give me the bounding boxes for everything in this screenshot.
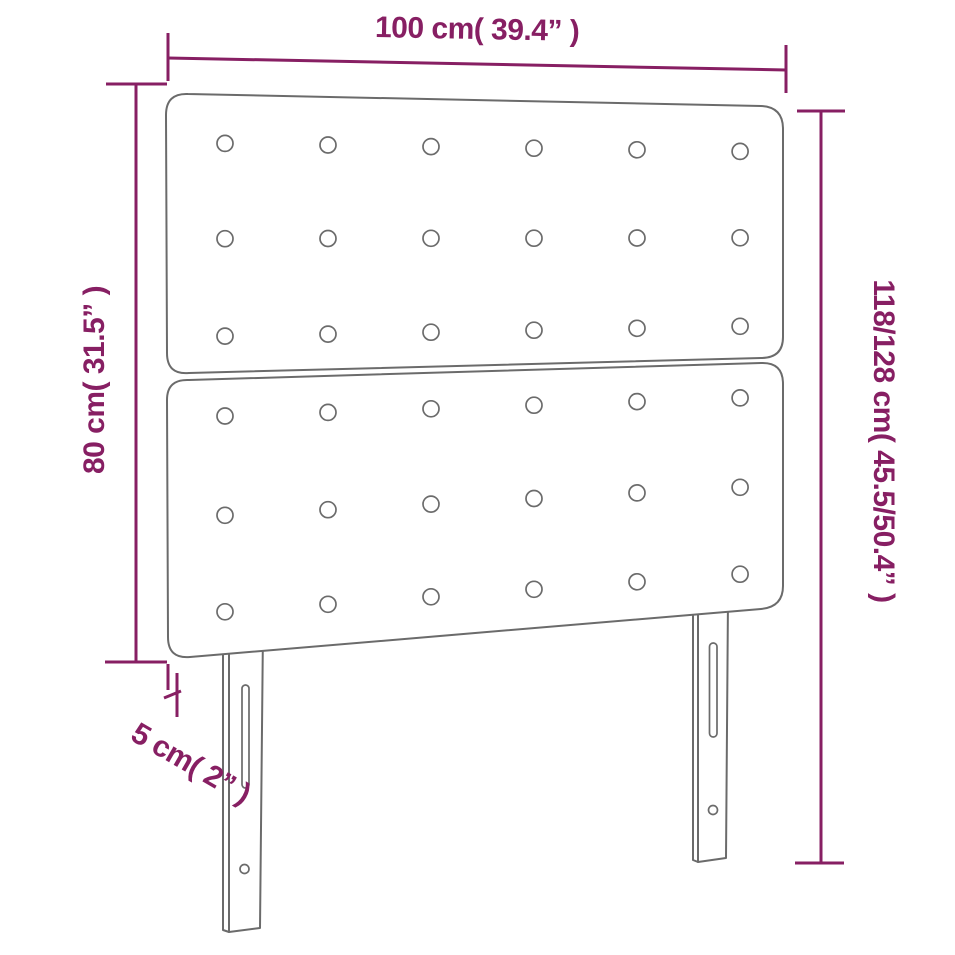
tufting-button xyxy=(217,135,233,151)
panel-height-dimension: 80 cm( 31.5” ) xyxy=(78,84,167,662)
tufting-button xyxy=(320,231,336,247)
total-height-dimension-label: 118/128 cm( 45.5/50.4” ) xyxy=(867,279,900,602)
tufting-button xyxy=(217,328,233,344)
tufting-button xyxy=(732,390,748,406)
tufting-button xyxy=(526,230,542,246)
panel-height-dimension-label: 80 cm( 31.5” ) xyxy=(78,286,111,474)
headboard-upper-panel xyxy=(166,94,783,373)
tufting-button xyxy=(423,589,439,605)
tufting-button xyxy=(526,397,542,413)
tufting-button xyxy=(629,230,645,246)
tufting-button xyxy=(629,320,645,336)
right-leg-front-face xyxy=(698,598,728,862)
tufting-button xyxy=(320,326,336,342)
headboard-lower-panel xyxy=(167,363,783,657)
tufting-button xyxy=(423,230,439,246)
tufting-button xyxy=(732,143,748,159)
tufting-button xyxy=(732,479,748,495)
tufting-button xyxy=(526,322,542,338)
right-leg xyxy=(693,598,728,862)
tufting-button xyxy=(423,401,439,417)
tufting-button xyxy=(732,566,748,582)
width-dimension-label: 100 cm( 39.4” ) xyxy=(375,11,580,48)
tufting-button xyxy=(629,485,645,501)
tufting-button xyxy=(732,230,748,246)
tufting-button xyxy=(629,142,645,158)
tufting-button xyxy=(629,574,645,590)
tufting-button xyxy=(320,137,336,153)
tufting-button xyxy=(629,394,645,410)
tufting-button xyxy=(217,231,233,247)
width-dimension: 100 cm( 39.4” ) xyxy=(168,11,786,93)
tufting-button xyxy=(217,507,233,523)
tufting-button xyxy=(526,581,542,597)
tufting-button xyxy=(320,596,336,612)
tufting-button xyxy=(732,318,748,334)
tufting-button xyxy=(217,604,233,620)
tufting-button xyxy=(217,408,233,424)
tufting-button xyxy=(423,496,439,512)
tufting-button xyxy=(320,502,336,518)
tufting-button xyxy=(526,140,542,156)
tufting-button xyxy=(526,491,542,507)
tufting-button xyxy=(423,139,439,155)
tufting-button xyxy=(423,324,439,340)
tufting-button xyxy=(320,404,336,420)
headboard-dimension-diagram: 100 cm( 39.4” ) 80 cm( 31.5” ) 118/128 c… xyxy=(0,0,955,955)
width-dimension-line xyxy=(168,58,786,70)
total-height-dimension: 118/128 cm( 45.5/50.4” ) xyxy=(795,111,900,863)
